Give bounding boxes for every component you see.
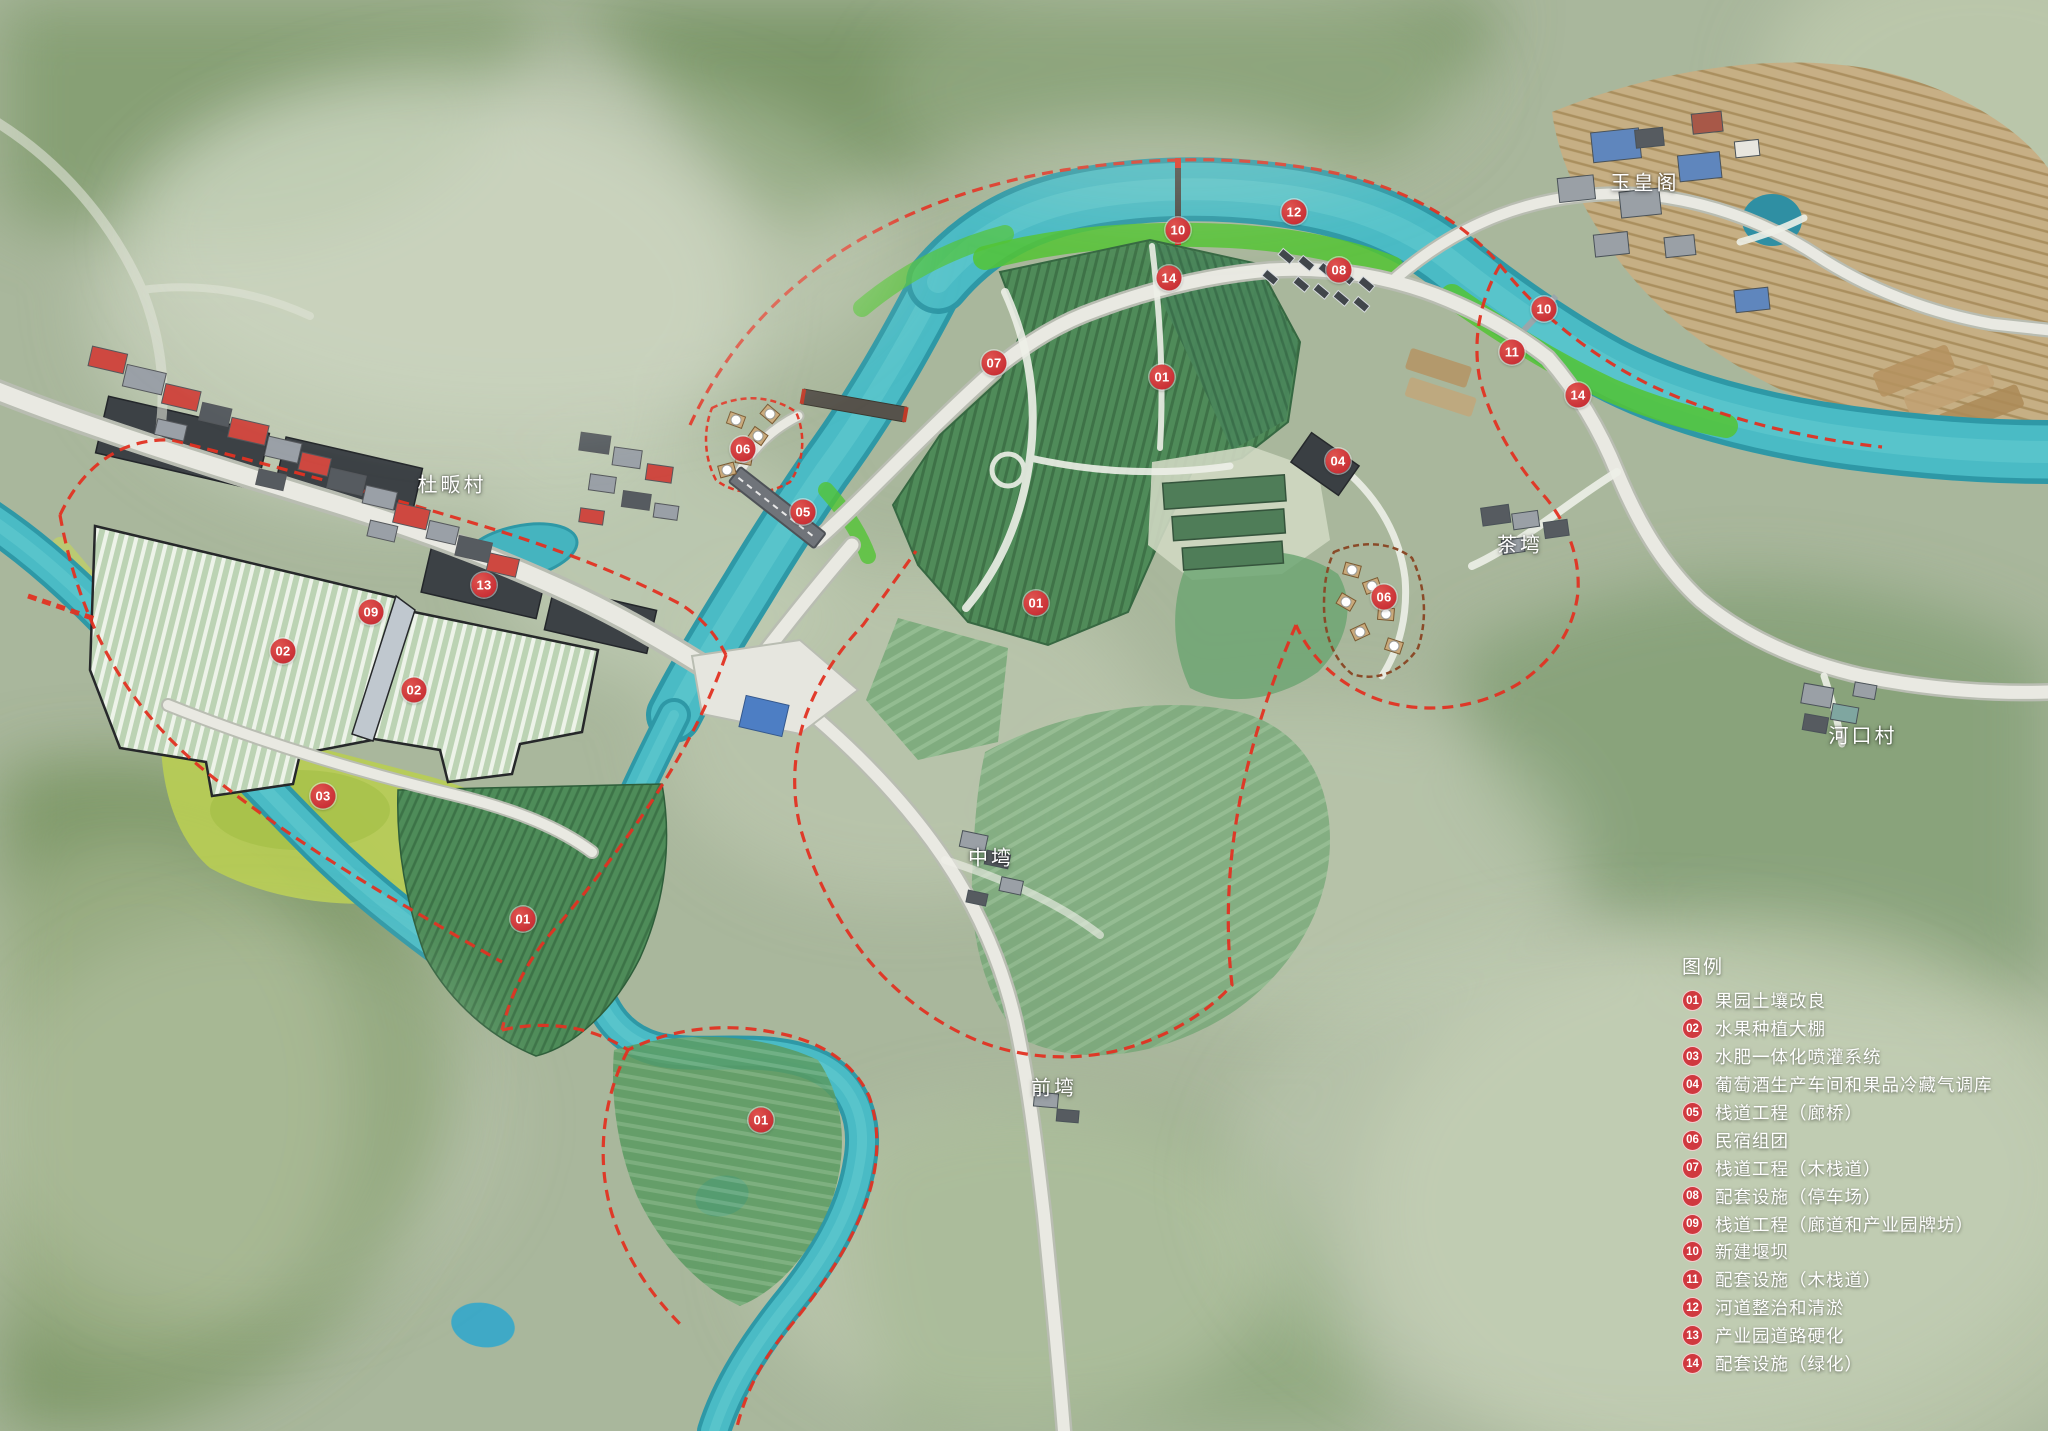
legend-item: 09栈道工程（廊道和产业园牌坊） [1682, 1210, 1993, 1238]
map-marker-11[interactable]: 11 [1500, 340, 1525, 365]
map-marker-10[interactable]: 10 [1166, 218, 1191, 243]
legend-badge: 06 [1682, 1130, 1703, 1151]
legend-item-label: 配套设施（停车场） [1715, 1184, 1882, 1209]
legend-badge: 14 [1682, 1353, 1703, 1374]
legend-item-label: 新建堰坝 [1715, 1239, 1789, 1264]
legend-item: 01果园土壤改良 [1682, 987, 1993, 1015]
legend-item-label: 配套设施（绿化） [1715, 1351, 1863, 1376]
place-label-chawan: 茶塆 [1497, 529, 1543, 558]
legend-item: 05栈道工程（廊桥） [1682, 1099, 1993, 1127]
legend-badge: 02 [1682, 1018, 1703, 1039]
legend-item: 08配套设施（停车场） [1682, 1182, 1993, 1210]
legend-item-label: 水果种植大棚 [1715, 1016, 1826, 1041]
map-marker-01[interactable]: 01 [511, 907, 536, 932]
legend: 图例 01果园土壤改良 02水果种植大棚 03水肥一体化喷灌系统 04葡萄酒生产… [1682, 952, 1993, 1377]
legend-badge: 12 [1682, 1297, 1703, 1318]
legend-list: 01果园土壤改良 02水果种植大棚 03水肥一体化喷灌系统 04葡萄酒生产车间和… [1682, 987, 1993, 1377]
legend-item: 07栈道工程（木栈道） [1682, 1154, 1993, 1182]
legend-item-label: 产业园道路硬化 [1715, 1323, 1845, 1348]
legend-badge: 01 [1682, 990, 1703, 1011]
map-marker-03[interactable]: 03 [311, 784, 336, 809]
legend-item: 11配套设施（木栈道） [1682, 1266, 1993, 1294]
legend-badge: 09 [1682, 1214, 1703, 1235]
map-marker-06[interactable]: 06 [731, 437, 756, 462]
legend-item: 04葡萄酒生产车间和果品冷藏气调库 [1682, 1071, 1993, 1099]
map-marker-01[interactable]: 01 [1150, 365, 1175, 390]
legend-badge: 11 [1682, 1269, 1703, 1290]
place-label-dufancun: 杜畈村 [418, 469, 487, 498]
legend-item: 14配套设施（绿化） [1682, 1350, 1993, 1378]
map-marker-02[interactable]: 02 [271, 639, 296, 664]
map-marker-12[interactable]: 12 [1282, 200, 1307, 225]
map-marker-01[interactable]: 01 [1024, 591, 1049, 616]
legend-item-label: 栈道工程（廊桥） [1715, 1100, 1863, 1125]
legend-item-label: 果园土壤改良 [1715, 988, 1826, 1013]
place-label-hekoucun: 河口村 [1829, 720, 1898, 749]
map-marker-02[interactable]: 02 [402, 678, 427, 703]
legend-item-label: 配套设施（木栈道） [1715, 1267, 1882, 1292]
legend-title: 图例 [1682, 952, 1993, 979]
legend-badge: 10 [1682, 1241, 1703, 1262]
place-label-zhongwan: 中塆 [968, 842, 1014, 871]
legend-item-label: 民宿组团 [1715, 1128, 1789, 1153]
legend-badge: 08 [1682, 1186, 1703, 1207]
legend-item: 03水肥一体化喷灌系统 [1682, 1043, 1993, 1071]
legend-item: 10新建堰坝 [1682, 1238, 1993, 1266]
legend-item-label: 水肥一体化喷灌系统 [1715, 1044, 1882, 1069]
legend-badge: 03 [1682, 1046, 1703, 1067]
map-marker-13[interactable]: 13 [472, 573, 497, 598]
map-marker-01[interactable]: 01 [749, 1108, 774, 1133]
map-marker-09[interactable]: 09 [359, 600, 384, 625]
legend-item-label: 葡萄酒生产车间和果品冷藏气调库 [1715, 1072, 1993, 1097]
map-marker-06[interactable]: 06 [1372, 585, 1397, 610]
legend-item: 06民宿组团 [1682, 1126, 1993, 1154]
map-marker-05[interactable]: 05 [791, 500, 816, 525]
legend-item: 13产业园道路硬化 [1682, 1322, 1993, 1350]
map-marker-14[interactable]: 14 [1157, 266, 1182, 291]
legend-item-label: 栈道工程（廊道和产业园牌坊） [1715, 1212, 1974, 1237]
place-label-qianwan: 前塆 [1031, 1072, 1077, 1101]
legend-item: 02水果种植大棚 [1682, 1015, 1993, 1043]
map-marker-08[interactable]: 08 [1327, 258, 1352, 283]
legend-item: 12河道整治和清淤 [1682, 1294, 1993, 1322]
legend-item-label: 栈道工程（木栈道） [1715, 1156, 1882, 1181]
map-marker-10[interactable]: 10 [1532, 297, 1557, 322]
map-marker-04[interactable]: 04 [1326, 449, 1351, 474]
legend-badge: 13 [1682, 1325, 1703, 1346]
legend-badge: 07 [1682, 1158, 1703, 1179]
legend-badge: 05 [1682, 1102, 1703, 1123]
legend-badge: 04 [1682, 1074, 1703, 1095]
place-label-yuhuangge: 玉皇阁 [1611, 167, 1680, 196]
legend-item-label: 河道整治和清淤 [1715, 1295, 1845, 1320]
map-marker-14[interactable]: 14 [1566, 383, 1591, 408]
site-plan-map: 12 10 14 08 10 11 14 07 01 04 06 05 06 1… [0, 0, 2048, 1431]
map-marker-07[interactable]: 07 [982, 351, 1007, 376]
